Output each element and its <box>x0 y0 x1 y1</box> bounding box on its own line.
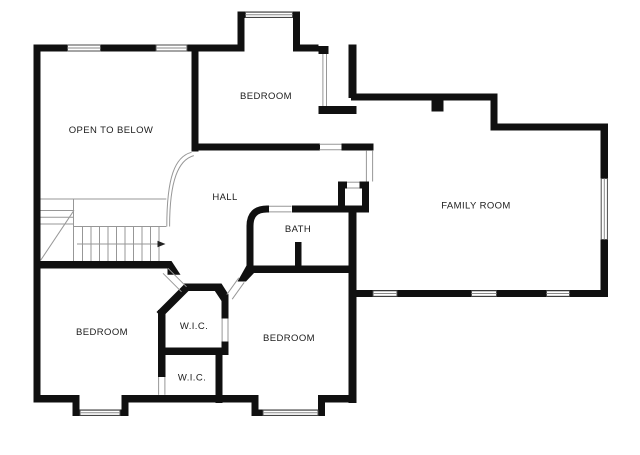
room-label-bedroom-left: BEDROOM <box>76 327 128 338</box>
floor-plan-svg: OPEN TO BELOW BEDROOM HALL BATH FAMILY R… <box>0 0 640 455</box>
room-label-bedroom-right: BEDROOM <box>263 333 315 344</box>
room-label-wic-upper: W.I.C. <box>180 321 208 332</box>
window <box>601 179 607 240</box>
window <box>263 410 318 415</box>
window <box>246 12 293 17</box>
room-label-open-to-below: OPEN TO BELOW <box>69 125 154 136</box>
window <box>80 410 120 415</box>
floor-plan: OPEN TO BELOW BEDROOM HALL BATH FAMILY R… <box>0 0 640 455</box>
staircase <box>41 152 194 261</box>
window <box>373 291 397 297</box>
windows <box>68 12 608 415</box>
walls <box>34 12 609 417</box>
room-labels: OPEN TO BELOW BEDROOM HALL BATH FAMILY R… <box>69 91 511 384</box>
room-label-bedroom-top: BEDROOM <box>240 91 292 102</box>
room-label-hall: HALL <box>212 192 237 203</box>
window <box>472 291 497 297</box>
room-label-wic-lower: W.I.C. <box>178 373 206 384</box>
room-label-bath: BATH <box>285 224 311 235</box>
window <box>68 45 101 51</box>
stairs-direction-arrow-icon <box>158 241 166 248</box>
window <box>547 291 570 297</box>
window <box>156 45 187 51</box>
stair-railing-curve <box>167 152 192 226</box>
room-label-family-room: FAMILY ROOM <box>441 201 511 212</box>
